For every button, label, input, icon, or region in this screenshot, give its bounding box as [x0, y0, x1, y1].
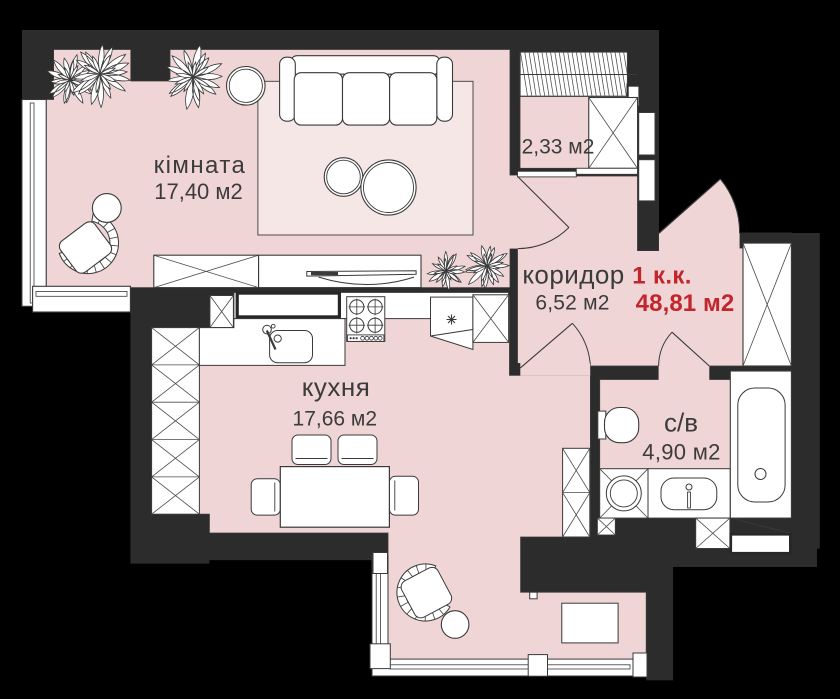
svg-text:17,66 м2: 17,66 м2: [293, 407, 378, 430]
svg-text:2,33 м2: 2,33 м2: [522, 136, 595, 159]
svg-text:кімната: кімната: [154, 152, 247, 179]
svg-text:4,90 м2: 4,90 м2: [642, 440, 720, 465]
svg-text:с/в: с/в: [664, 408, 698, 438]
svg-text:6,52 м2: 6,52 м2: [535, 292, 609, 315]
svg-text:1 к.к.: 1 к.к.: [632, 263, 691, 290]
svg-text:коридор: коридор: [522, 260, 624, 290]
svg-text:кухня: кухня: [302, 372, 371, 402]
svg-text:17,40 м2: 17,40 м2: [154, 179, 243, 204]
svg-text:48,81 м2: 48,81 м2: [636, 290, 735, 317]
